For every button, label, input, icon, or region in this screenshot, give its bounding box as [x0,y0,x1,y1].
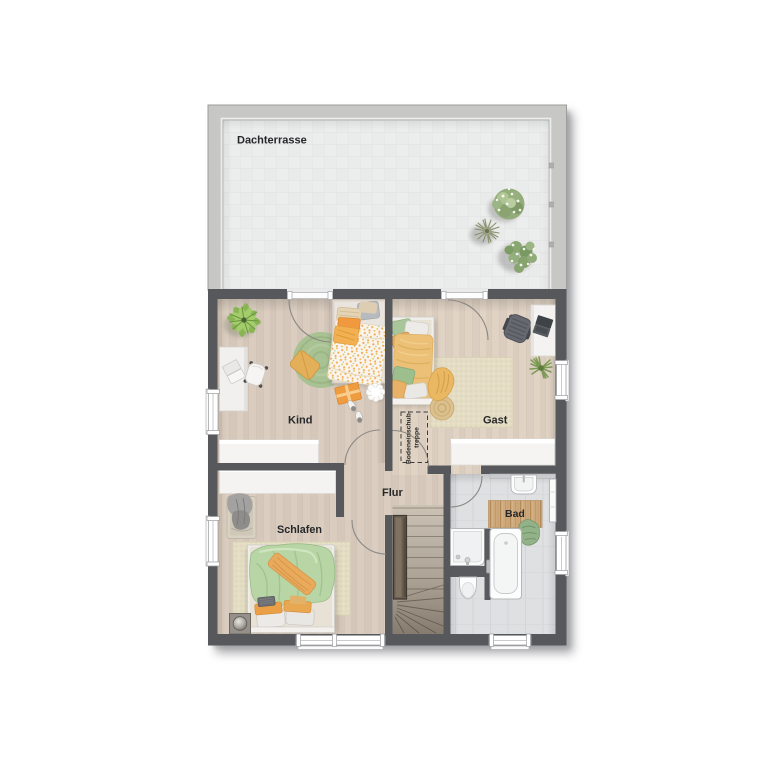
svg-text:Gast: Gast [483,415,508,427]
svg-text:Bodeneinschub-: Bodeneinschub- [406,411,413,464]
svg-text:Dachterrasse: Dachterrasse [237,135,307,147]
svg-text:Flur: Flur [382,487,403,499]
svg-text:treppe: treppe [414,427,421,448]
svg-text:Kind: Kind [288,415,312,427]
svg-text:Schlafen: Schlafen [277,524,322,536]
svg-text:Bad: Bad [505,508,525,520]
